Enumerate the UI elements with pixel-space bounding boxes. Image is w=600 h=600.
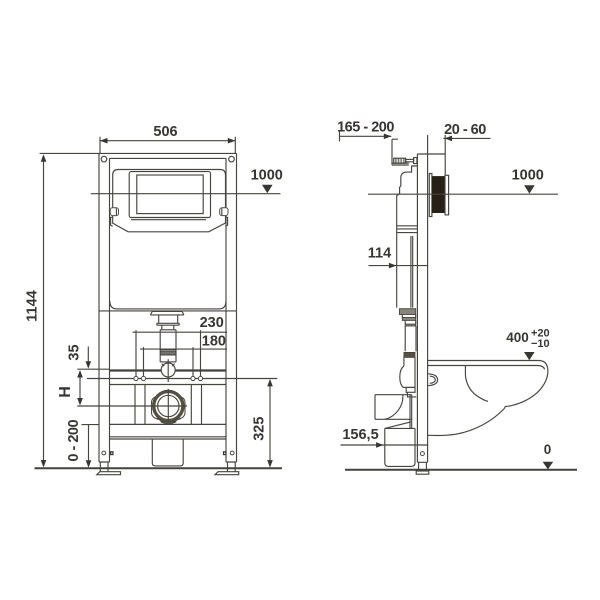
svg-text:−10: −10 <box>531 338 550 350</box>
svg-text:1144: 1144 <box>25 290 41 321</box>
svg-text:1000: 1000 <box>512 168 544 184</box>
svg-text:0 - 200: 0 - 200 <box>66 420 82 462</box>
svg-text:230: 230 <box>200 315 224 331</box>
svg-text:325: 325 <box>252 417 268 441</box>
svg-text:156,5: 156,5 <box>342 427 378 443</box>
svg-text:165 - 200: 165 - 200 <box>337 119 394 135</box>
svg-text:1000: 1000 <box>251 168 283 184</box>
svg-text:506: 506 <box>153 124 177 140</box>
svg-text:35: 35 <box>67 344 83 360</box>
svg-text:0: 0 <box>544 442 552 457</box>
svg-text:20 - 60: 20 - 60 <box>444 122 486 138</box>
svg-text:180: 180 <box>202 334 226 350</box>
svg-text:H: H <box>57 386 74 398</box>
svg-text:114: 114 <box>368 245 391 261</box>
svg-text:400: 400 <box>506 330 529 345</box>
